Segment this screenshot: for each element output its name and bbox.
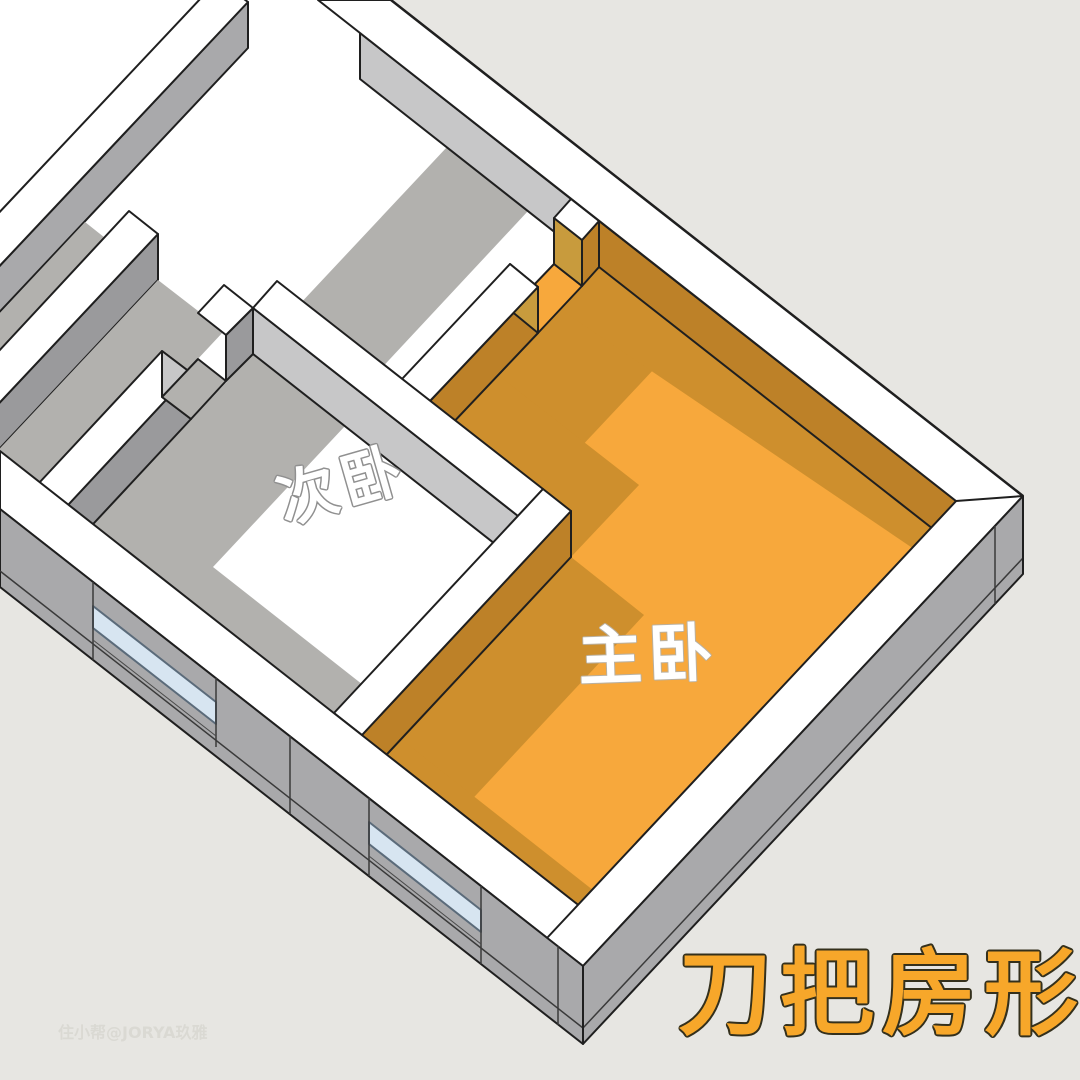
- floorplan-3d-illustration: 次卧 主卧 刀把房形 住小帮@JORYA玖雅: [0, 0, 1080, 1080]
- watermark-text: 住小帮@JORYA玖雅: [58, 1023, 207, 1042]
- master-bedroom-label: 主卧: [577, 617, 719, 696]
- scene-canvas: 次卧 主卧 刀把房形 住小帮@JORYA玖雅: [0, 0, 1080, 1080]
- room-shape-title: 刀把房形: [678, 940, 1080, 1049]
